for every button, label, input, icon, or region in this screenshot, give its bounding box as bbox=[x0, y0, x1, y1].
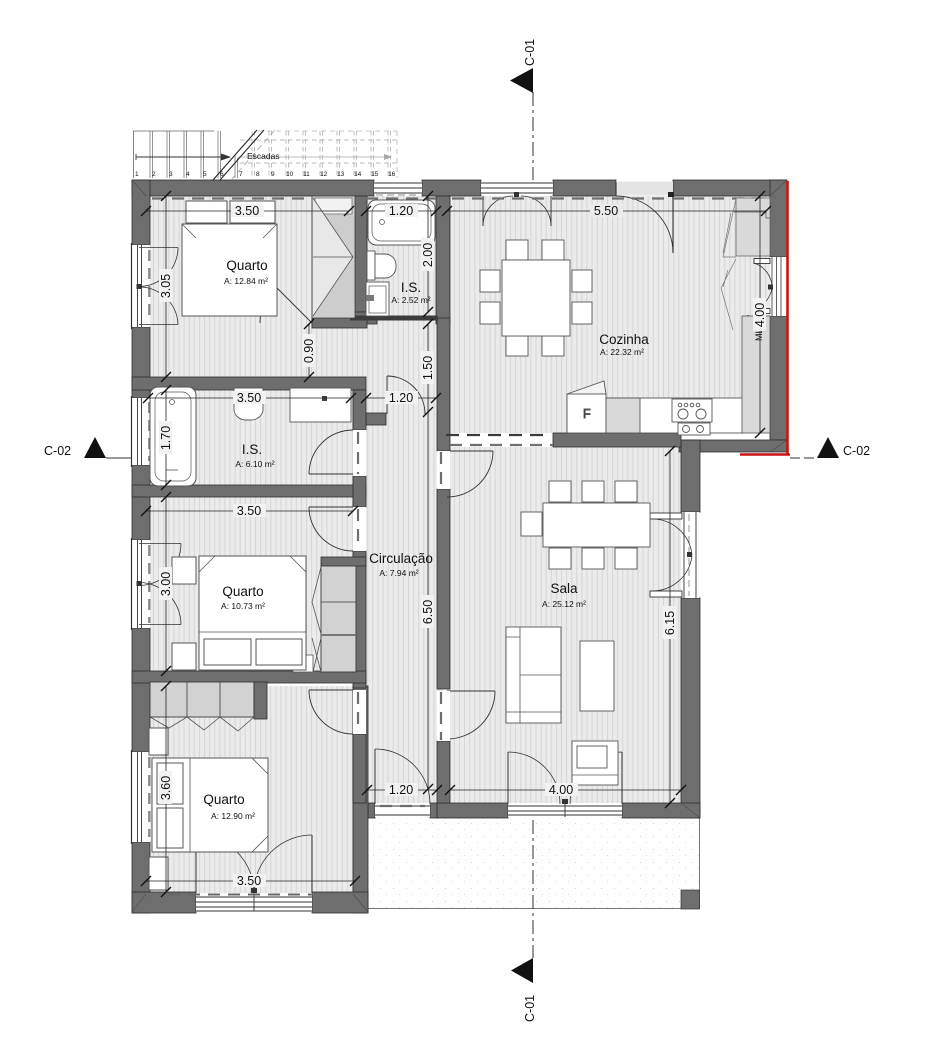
svg-text:A: 6.10 m²: A: 6.10 m² bbox=[235, 459, 274, 469]
svg-text:1.20: 1.20 bbox=[389, 391, 413, 405]
svg-text:11: 11 bbox=[303, 171, 310, 178]
svg-text:A: 12.90 m²: A: 12.90 m² bbox=[211, 811, 255, 821]
svg-text:A: 12.84 m²: A: 12.84 m² bbox=[224, 276, 268, 286]
svg-text:A: 22.32 m²: A: 22.32 m² bbox=[600, 347, 644, 357]
svg-text:15: 15 bbox=[371, 171, 379, 178]
svg-text:12: 12 bbox=[320, 171, 328, 178]
svg-text:C-01: C-01 bbox=[523, 39, 537, 66]
svg-text:3.05: 3.05 bbox=[159, 274, 173, 298]
svg-text:1.20: 1.20 bbox=[389, 783, 413, 797]
svg-text:Cozinha: Cozinha bbox=[599, 332, 649, 347]
svg-text:A: 10.73 m²: A: 10.73 m² bbox=[221, 601, 265, 611]
svg-text:A: 25.12 m²: A: 25.12 m² bbox=[542, 599, 586, 609]
svg-text:4.00: 4.00 bbox=[753, 303, 767, 327]
svg-text:Quarto: Quarto bbox=[203, 792, 244, 807]
svg-text:1.70: 1.70 bbox=[159, 426, 173, 450]
svg-text:1.50: 1.50 bbox=[421, 356, 435, 380]
svg-text:I.S.: I.S. bbox=[401, 280, 421, 295]
svg-text:Quarto: Quarto bbox=[226, 258, 267, 273]
svg-text:3.00: 3.00 bbox=[159, 572, 173, 596]
svg-text:C-01: C-01 bbox=[523, 995, 537, 1022]
svg-text:8: 8 bbox=[256, 171, 260, 178]
svg-text:2.00: 2.00 bbox=[421, 243, 435, 267]
svg-text:4: 4 bbox=[186, 171, 190, 178]
svg-text:3: 3 bbox=[169, 171, 173, 178]
svg-text:10: 10 bbox=[286, 171, 294, 178]
svg-text:Quarto: Quarto bbox=[222, 584, 263, 599]
svg-text:3.60: 3.60 bbox=[159, 776, 173, 800]
svg-text:3.50: 3.50 bbox=[237, 874, 261, 888]
svg-text:3.50: 3.50 bbox=[237, 504, 261, 518]
svg-text:3.50: 3.50 bbox=[237, 391, 261, 405]
svg-text:6.15: 6.15 bbox=[663, 611, 677, 635]
svg-text:9: 9 bbox=[271, 171, 275, 178]
svg-text:4.00: 4.00 bbox=[549, 783, 573, 797]
svg-text:Circulação: Circulação bbox=[369, 551, 433, 566]
svg-text:6.50: 6.50 bbox=[421, 600, 435, 624]
svg-text:5.50: 5.50 bbox=[594, 204, 618, 218]
svg-text:A: 7.94 m²: A: 7.94 m² bbox=[379, 568, 418, 578]
svg-text:1.20: 1.20 bbox=[389, 204, 413, 218]
svg-text:5: 5 bbox=[203, 171, 207, 178]
svg-text:1: 1 bbox=[135, 171, 139, 178]
svg-text:Escadas: Escadas bbox=[247, 151, 280, 161]
svg-text:16: 16 bbox=[388, 171, 396, 178]
svg-text:6: 6 bbox=[220, 171, 224, 178]
svg-text:Sala: Sala bbox=[550, 581, 578, 596]
svg-text:A: 2.52 m²: A: 2.52 m² bbox=[391, 295, 430, 305]
svg-text:0.90: 0.90 bbox=[302, 339, 316, 363]
svg-text:C-02: C-02 bbox=[44, 444, 71, 458]
svg-text:3.50: 3.50 bbox=[235, 204, 259, 218]
svg-text:F: F bbox=[583, 407, 591, 421]
svg-text:I.S.: I.S. bbox=[242, 442, 262, 457]
svg-text:14: 14 bbox=[354, 171, 362, 178]
svg-text:C-02: C-02 bbox=[843, 444, 870, 458]
svg-text:7: 7 bbox=[239, 171, 243, 178]
svg-text:2: 2 bbox=[152, 171, 156, 178]
svg-text:13: 13 bbox=[337, 171, 345, 178]
